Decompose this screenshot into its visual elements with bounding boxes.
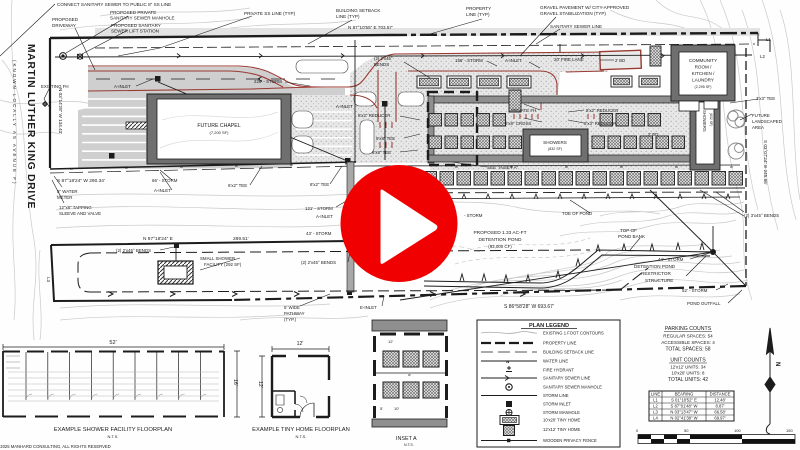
svg-text:2' BD: 2' BD <box>648 132 658 137</box>
svg-text:WATER LINE: WATER LINE <box>543 359 568 364</box>
svg-text:AREA: AREA <box>752 125 764 130</box>
svg-text:UNIT COUNTS: UNIT COUNTS <box>670 358 706 364</box>
svg-text:LINE (TYP): LINE (TYP) <box>466 12 490 17</box>
svg-text:(2) 2'x45°: (2) 2'x45° <box>374 56 393 61</box>
svg-text:DETENTION POND: DETENTION POND <box>479 237 522 243</box>
svg-text:226' - STORM: 226' - STORM <box>254 79 282 84</box>
svg-text:44' - STORM: 44' - STORM <box>658 257 684 262</box>
svg-text:GRAVEL PAVEMENT W/ CITY-APPROV: GRAVEL PAVEMENT W/ CITY-APPROVED <box>540 5 630 10</box>
svg-text:w: w <box>455 164 458 169</box>
svg-text:FUTURE CHAPEL: FUTURE CHAPEL <box>197 123 240 129</box>
svg-text:12.48': 12.48' <box>714 398 725 403</box>
svg-text:EXISTING 1 FOOT CONTOURS: EXISTING 1 FOOT CONTOURS <box>543 331 604 336</box>
svg-text:BUILDING SETBACK: BUILDING SETBACK <box>336 8 381 13</box>
svg-text:S 01°18'52" E: S 01°18'52" E <box>671 398 697 403</box>
svg-text:5' WIDE: 5' WIDE <box>284 305 300 310</box>
svg-text:PROPOSED: PROPOSED <box>52 17 79 22</box>
svg-text:L4: L4 <box>653 416 658 421</box>
svg-text:S 86°58'28" W 693.67': S 86°58'28" W 693.67' <box>504 304 554 310</box>
svg-text:PROPOSED SANITARY: PROPOSED SANITARY <box>111 23 161 28</box>
svg-text:PROPERTY LINE: PROPERTY LINE <box>543 341 577 346</box>
svg-text:2' BD: 2' BD <box>615 58 625 63</box>
svg-text:150: 150 <box>786 428 793 433</box>
svg-text:SANITARY SEWER MANHOLE: SANITARY SEWER MANHOLE <box>110 16 175 21</box>
svg-text:PROPOSED 1.33 AC-FT: PROPOSED 1.33 AC-FT <box>473 230 526 236</box>
svg-text:L1: L1 <box>766 37 771 42</box>
svg-text:N 03°13'47" W: N 03°13'47" W <box>670 410 697 415</box>
svg-text:L1: L1 <box>653 398 658 403</box>
svg-text:PRIVATE FH: PRIVATE FH <box>511 108 536 113</box>
svg-text:LINE: LINE <box>651 392 661 397</box>
svg-text:(2) 3'x45° BENDS: (2) 3'x45° BENDS <box>744 213 779 218</box>
svg-text:(7,200 SF): (7,200 SF) <box>210 130 230 135</box>
svg-text:3'x3" TEE: 3'x3" TEE <box>756 96 775 101</box>
svg-text:PARKING COUNTS: PARKING COUNTS <box>665 326 712 332</box>
svg-text:SHOWERS: SHOWERS <box>702 110 707 132</box>
svg-text:66' - STORM: 66' - STORM <box>152 178 178 183</box>
svg-text:ACCESSIBLE SPACES: 4: ACCESSIBLE SPACES: 4 <box>661 340 715 345</box>
svg-text:A-INLET: A-INLET <box>505 58 522 63</box>
svg-text:SMALL SHOWER: SMALL SHOWER <box>200 256 235 261</box>
svg-text:EXAMPLE SHOWER FACILITY FLOORP: EXAMPLE SHOWER FACILITY FLOORPLAN <box>54 427 172 433</box>
svg-text:N 87°10'55" E 703.57': N 87°10'55" E 703.57' <box>348 25 393 30</box>
svg-text:w: w <box>505 359 510 364</box>
svg-text:METER: METER <box>57 195 72 200</box>
svg-text:WOODEN PRIVACY FENCE: WOODEN PRIVACY FENCE <box>543 438 597 443</box>
svg-text:12"x8" TAPPING: 12"x8" TAPPING <box>59 205 92 210</box>
svg-text:w: w <box>675 164 678 169</box>
svg-text:A-INLET: A-INLET <box>316 214 333 219</box>
svg-text:GRAVEL STABILIZATION (TYP): GRAVEL STABILIZATION (TYP) <box>540 11 606 16</box>
svg-text:w: w <box>620 164 623 169</box>
svg-text:STORM LINE: STORM LINE <box>543 393 569 398</box>
svg-text:N.T.S.: N.T.S. <box>108 434 119 439</box>
svg-text:8'x2" TEE: 8'x2" TEE <box>310 182 329 187</box>
svg-text:PRIVATE SS LINE (TYP): PRIVATE SS LINE (TYP) <box>244 11 296 16</box>
svg-text:52': 52' <box>109 340 116 346</box>
svg-text:POND BANK: POND BANK <box>618 234 646 239</box>
svg-text:L2: L2 <box>760 54 765 59</box>
svg-text:MARTIN LUTHER KING DRIVE: MARTIN LUTHER KING DRIVE <box>25 44 36 209</box>
svg-text:50: 50 <box>684 428 689 433</box>
svg-text:SEWER LIFT STATION: SEWER LIFT STATION <box>111 29 159 34</box>
svg-text:8'x8" TEE: 8'x8" TEE <box>376 136 395 141</box>
svg-text:10'x20' TINY HOME: 10'x20' TINY HOME <box>543 418 580 423</box>
svg-text:w: w <box>565 164 568 169</box>
svg-text:SEE "INSET A": SEE "INSET A" <box>487 165 519 170</box>
svg-text:8'x8" TEE: 8'x8" TEE <box>372 150 391 155</box>
svg-text:N 02°41'38" W: N 02°41'38" W <box>670 416 697 421</box>
svg-text:STORM INLET: STORM INLET <box>543 402 572 407</box>
svg-text:E-INLET: E-INLET <box>360 305 377 310</box>
svg-text:w: w <box>125 165 128 170</box>
svg-text:(93,000 CF): (93,000 CF) <box>488 244 512 249</box>
svg-text:SANITARY SEWER LINE: SANITARY SEWER LINE <box>550 24 602 29</box>
svg-text:LANDSCAPED: LANDSCAPED <box>752 119 782 124</box>
svg-text:LINE (TYP): LINE (TYP) <box>336 14 360 19</box>
svg-text:- STORM: - STORM <box>464 213 483 218</box>
svg-text:DETENTION POND: DETENTION POND <box>634 264 676 269</box>
svg-text:289.51': 289.51' <box>233 236 249 242</box>
svg-text:8'x2" REDUCER: 8'x2" REDUCER <box>358 113 390 118</box>
svg-text:N: N <box>774 362 780 366</box>
svg-text:w: w <box>408 373 411 377</box>
svg-text:(2) 2'x45° BENDS: (2) 2'x45° BENDS <box>116 248 151 253</box>
svg-text:10'x20' UNITS: 8: 10'x20' UNITS: 8 <box>672 371 705 376</box>
svg-text:(2) 2'x45° BENDS: (2) 2'x45° BENDS <box>301 260 336 265</box>
svg-text:(832 SF): (832 SF) <box>709 113 713 126</box>
svg-text:66.58': 66.58' <box>714 410 725 415</box>
svg-text:69.97': 69.97' <box>714 416 725 421</box>
svg-text:TOE OF POND: TOE OF POND <box>562 211 592 216</box>
svg-text:w: w <box>180 164 183 169</box>
svg-text:BEARING: BEARING <box>675 392 694 397</box>
svg-text:A-INLET: A-INLET <box>114 84 131 89</box>
svg-text:CONNECT SANITARY SEWER TO PUBL: CONNECT SANITARY SEWER TO PUBLIC 8" SS L… <box>57 2 171 7</box>
svg-text:© 2025 MANHARD CONSULTING,: © 2025 MANHARD CONSULTING, ALL RIGHTS RE… <box>0 444 111 449</box>
svg-text:STRUCTURE: STRUCTURE <box>645 278 673 283</box>
svg-text:INSET A: INSET A <box>396 436 417 442</box>
svg-text:REGULAR SPACES: 54: REGULAR SPACES: 54 <box>663 334 713 339</box>
svg-text:12': 12' <box>257 381 263 388</box>
svg-text:RESTRICTOR: RESTRICTOR <box>641 271 671 276</box>
svg-text:8'x3" REDUCER: 8'x3" REDUCER <box>584 121 616 126</box>
svg-text:w: w <box>70 166 73 171</box>
svg-text:8.87': 8.87' <box>716 404 725 409</box>
svg-text:POND OUTFALL: POND OUTFALL <box>687 301 721 306</box>
svg-text:N.T.S.: N.T.S. <box>404 443 414 447</box>
svg-text:8'x8" CROSS: 8'x8" CROSS <box>505 121 531 126</box>
svg-text:TOP OF: TOP OF <box>620 228 637 233</box>
svg-text:A-INLET: A-INLET <box>336 104 353 109</box>
svg-text:S 03°07'24" E 245.66': S 03°07'24" E 245.66' <box>763 140 768 185</box>
svg-text:5': 5' <box>380 406 383 411</box>
svg-text:FIRE HYDRANT: FIRE HYDRANT <box>543 368 574 373</box>
svg-text:SANITARY SEWER LINE: SANITARY SEWER LINE <box>543 376 591 381</box>
svg-text:(2,295 SF): (2,295 SF) <box>695 85 712 89</box>
svg-text:DISTANCE: DISTANCE <box>710 392 731 397</box>
svg-text:(832 SF): (832 SF) <box>548 147 562 151</box>
svg-text:S 87°01'48" W: S 87°01'48" W <box>670 404 697 409</box>
svg-text:L3: L3 <box>653 410 658 415</box>
svg-text:43' - STORM: 43' - STORM <box>306 231 332 236</box>
svg-text:10': 10' <box>394 406 399 411</box>
svg-text:BUILDING SETBACK LINE: BUILDING SETBACK LINE <box>543 350 594 355</box>
svg-text:DRIVEWAY: DRIVEWAY <box>52 23 76 28</box>
svg-text:20' FIRE LANE: 20' FIRE LANE <box>554 57 584 62</box>
svg-text:PROPOSED PRIVATE: PROPOSED PRIVATE <box>110 10 156 15</box>
svg-text:N 03°14'28" W 134.43': N 03°14'28" W 134.43' <box>58 88 63 134</box>
svg-text:6'x2" TEE: 6'x2" TEE <box>228 183 247 188</box>
svg-text:EXAMPLE TINY HOME FLOORPLAN: EXAMPLE TINY HOME FLOORPLAN <box>252 427 350 433</box>
svg-text:KITCHEN /: KITCHEN / <box>692 71 715 76</box>
svg-text:ROOM /: ROOM / <box>695 65 713 70</box>
svg-text:156' - STORM: 156' - STORM <box>455 58 483 63</box>
svg-text:(TYP.): (TYP.) <box>284 317 297 322</box>
svg-text:PROPERTY: PROPERTY <box>466 6 491 11</box>
svg-text:TOTAL UNITS: 42: TOTAL UNITS: 42 <box>668 377 708 383</box>
svg-text:N 87°18'24" E: N 87°18'24" E <box>143 236 173 242</box>
svg-text:PATHWAY: PATHWAY <box>284 311 305 316</box>
svg-text:PLAN LEGEND: PLAN LEGEND <box>529 323 569 329</box>
svg-text:LAUNDRY: LAUNDRY <box>692 78 714 83</box>
svg-text:BENDS: BENDS <box>374 62 389 67</box>
svg-text:12'x12' TINY HOME: 12'x12' TINY HOME <box>543 427 580 432</box>
svg-text:A-INLET: A-INLET <box>154 188 171 193</box>
svg-text:COMMUNITY: COMMUNITY <box>689 58 717 63</box>
svg-text:(KNOWN LOCALLY AS AVENUE F): (KNOWN LOCALLY AS AVENUE F) <box>12 60 17 186</box>
svg-text:16': 16' <box>232 379 238 386</box>
svg-text:N.T.S.: N.T.S. <box>296 434 307 439</box>
svg-text:12': 12' <box>388 339 393 344</box>
svg-text:S 87°18'24" W 290.34': S 87°18'24" W 290.34' <box>57 178 105 184</box>
svg-text:FUTURE: FUTURE <box>752 113 770 118</box>
svg-text:100: 100 <box>734 428 741 433</box>
svg-text:12'x12' UNITS: 34: 12'x12' UNITS: 34 <box>670 365 706 370</box>
svg-text:8" WATER: 8" WATER <box>57 189 78 194</box>
svg-text:TOTAL SPACES: 58: TOTAL SPACES: 58 <box>665 347 710 353</box>
svg-text:EXISTING FH: EXISTING FH <box>41 84 69 89</box>
svg-text:FACILITY (292 SF): FACILITY (292 SF) <box>204 262 242 267</box>
svg-text:L2: L2 <box>653 404 658 409</box>
svg-text:121' - STORM: 121' - STORM <box>305 206 333 211</box>
svg-text:SHOWERS: SHOWERS <box>543 140 567 145</box>
svg-text:52' - STORM: 52' - STORM <box>682 288 708 293</box>
svg-text:L3: L3 <box>46 277 51 282</box>
svg-text:12': 12' <box>297 341 304 347</box>
svg-text:SANITARY SEWER MANHOLE: SANITARY SEWER MANHOLE <box>543 385 602 390</box>
svg-text:STORM MANHOLE: STORM MANHOLE <box>543 410 580 415</box>
svg-text:w: w <box>730 164 733 169</box>
svg-text:SLEEVE AND VALVE: SLEEVE AND VALVE <box>59 211 101 216</box>
svg-text:8'x2" REDUCER: 8'x2" REDUCER <box>586 108 618 113</box>
